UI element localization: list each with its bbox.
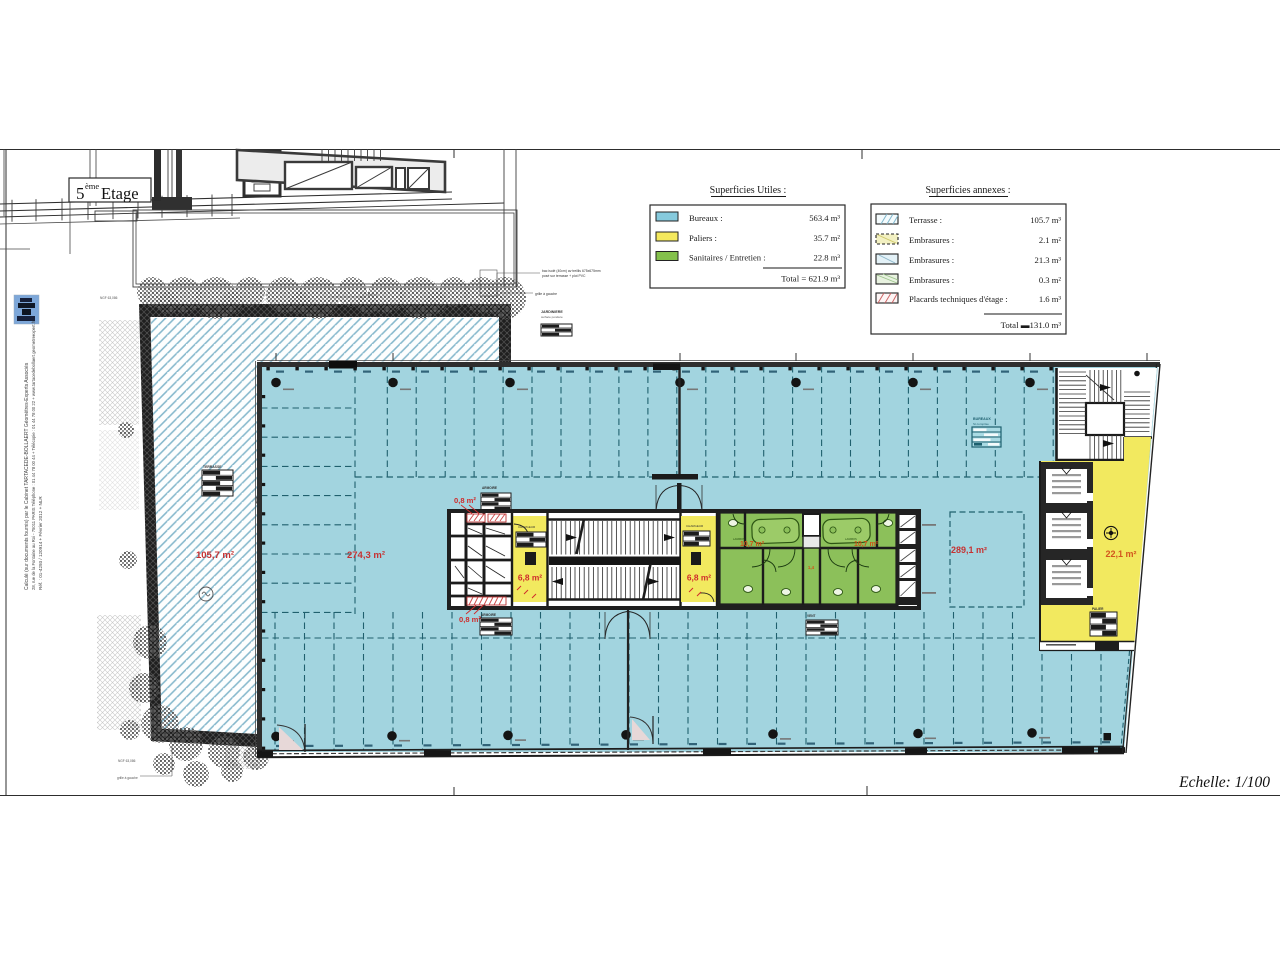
svg-text:6,8 m²: 6,8 m² [687, 573, 711, 583]
svg-text:LAVABOS: LAVABOS [845, 537, 857, 541]
svg-text:ARMOIRE: ARMOIRE [481, 613, 496, 617]
svg-text:JARDINIERE: JARDINIERE [541, 310, 563, 314]
svg-text:VENT: VENT [807, 614, 816, 618]
svg-text:1,4: 1,4 [808, 565, 815, 570]
svg-text:105,7 m²: 105,7 m² [196, 550, 234, 561]
svg-text:Bureaux :: Bureaux : [689, 213, 723, 223]
svg-text:10,7 m²: 10,7 m² [854, 541, 879, 548]
svg-text:Placards techniques d'étage :: Placards techniques d'étage : [909, 294, 1008, 304]
svg-text:bac isolé (40cm) av treillis 6: bac isolé (40cm) av treillis 675x675mm [542, 269, 601, 273]
svg-text:BUREAUX: BUREAUX [973, 417, 991, 421]
svg-text:Echelle: 1/100: Echelle: 1/100 [1178, 774, 1270, 791]
svg-text:surface pondere: surface pondere [541, 315, 563, 319]
svg-text:CHARGEUR: CHARGEUR [686, 524, 704, 528]
svg-text:Réf. : 01-4293 / 120914 + Févr: Réf. : 01-4293 / 120914 + Février 2012 +… [38, 496, 43, 590]
svg-text:274,3 m²: 274,3 m² [347, 550, 385, 561]
svg-text:posé sur terrasse + plot PVC: posé sur terrasse + plot PVC [542, 274, 586, 278]
svg-text:Superficies Utiles :: Superficies Utiles : [710, 185, 787, 196]
svg-text:5: 5 [76, 184, 85, 203]
svg-text:Embrasures :: Embrasures : [909, 255, 954, 265]
svg-text:Calculé (sur documents fournis: Calculé (sur documents fournis) par le C… [24, 362, 30, 590]
svg-text:Terrasse :: Terrasse : [909, 215, 942, 225]
svg-text:22.8 m³: 22.8 m³ [814, 253, 841, 263]
svg-text:21.3 m³: 21.3 m³ [1035, 255, 1062, 265]
svg-text:Superficies annexes :: Superficies annexes : [926, 185, 1011, 196]
svg-text:1.6 m³: 1.6 m³ [1039, 294, 1062, 304]
svg-text:0,8 m²: 0,8 m² [454, 496, 476, 505]
svg-text:LAVABOS: LAVABOS [733, 537, 745, 541]
svg-text:CHARGEUR: CHARGEUR [518, 525, 536, 529]
svg-text:105.7 m³: 105.7 m³ [1030, 215, 1061, 225]
svg-text:St comprise: St comprise [973, 422, 989, 426]
svg-text:35.7 m²: 35.7 m² [814, 233, 841, 243]
svg-text:Total = 621.9 m³: Total = 621.9 m³ [781, 274, 840, 284]
svg-text:Sanitaires / Entretien :: Sanitaires / Entretien : [689, 253, 766, 263]
svg-text:6,8 m²: 6,8 m² [518, 573, 542, 583]
svg-text:10,7 m²: 10,7 m² [740, 541, 765, 548]
svg-text:TERRASSE: TERRASSE [203, 465, 222, 469]
svg-text:ème: ème [85, 181, 99, 191]
svg-text:Embrasures :: Embrasures : [909, 235, 954, 245]
svg-text:563.4 m³: 563.4 m³ [809, 213, 840, 223]
svg-text:Paliers :: Paliers : [689, 233, 717, 243]
svg-text:Total ▬131.0 m³: Total ▬131.0 m³ [1001, 320, 1062, 330]
svg-text:289,1 m²: 289,1 m² [951, 545, 987, 555]
svg-text:0,8 m²: 0,8 m² [459, 615, 481, 624]
svg-text:Embrasures :: Embrasures : [909, 275, 954, 285]
svg-text:grille à gauche: grille à gauche [535, 292, 557, 296]
svg-text:Etage: Etage [101, 184, 139, 203]
svg-text:ARMOIRE: ARMOIRE [482, 486, 497, 490]
svg-text:NGF 63,086: NGF 63,086 [100, 296, 118, 300]
svg-text:22,1 m²: 22,1 m² [1105, 549, 1136, 559]
svg-text:0.3 m²: 0.3 m² [1039, 275, 1062, 285]
svg-text:grille à gauche: grille à gauche [117, 776, 138, 780]
svg-text:28, rue de la Fontaine au Roi: 28, rue de la Fontaine au Roi - 75011 PA… [31, 320, 36, 590]
svg-text:NGF 63,086: NGF 63,086 [118, 759, 136, 763]
svg-text:PALIER: PALIER [1092, 607, 1104, 611]
svg-text:2.1 m²: 2.1 m² [1039, 235, 1062, 245]
